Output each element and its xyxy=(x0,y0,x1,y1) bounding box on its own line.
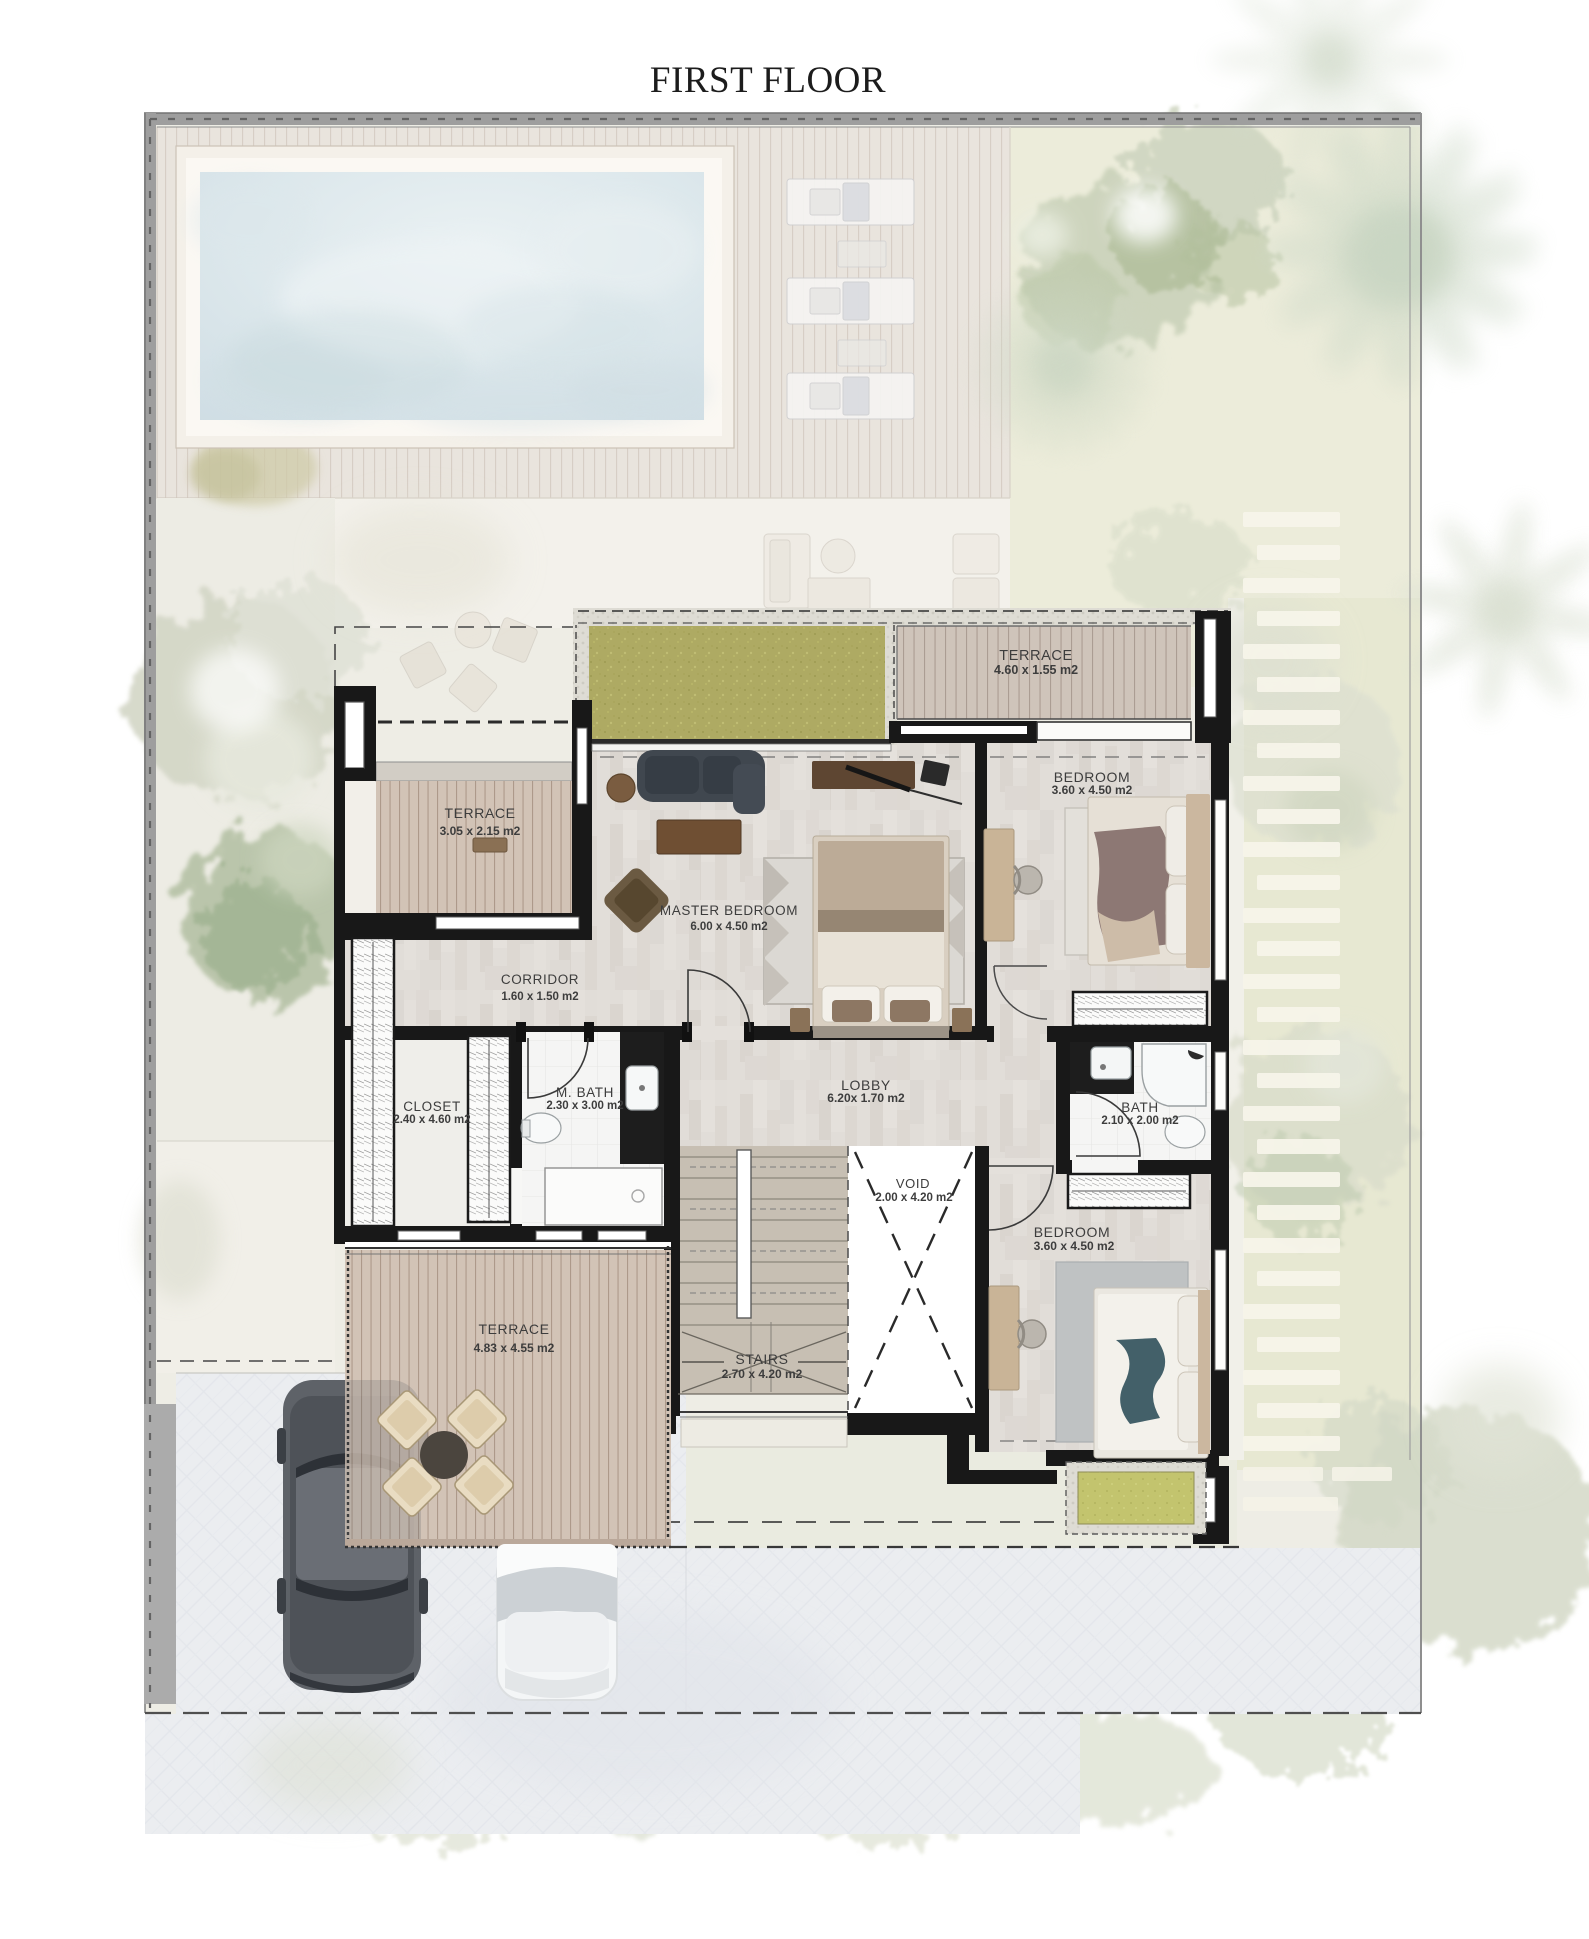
svg-text:2.30 x 3.00 m2: 2.30 x 3.00 m2 xyxy=(546,1100,623,1112)
svg-text:TERRACE: TERRACE xyxy=(444,805,515,821)
svg-text:BEDROOM: BEDROOM xyxy=(1034,1224,1111,1240)
svg-text:4.83 x 4.55 m2: 4.83 x 4.55 m2 xyxy=(474,1341,555,1355)
svg-text:STAIRS: STAIRS xyxy=(735,1351,788,1367)
svg-text:MASTER BEDROOM: MASTER BEDROOM xyxy=(660,903,798,918)
svg-text:3.05 x 2.15 m2: 3.05 x 2.15 m2 xyxy=(440,824,521,838)
svg-text:CORRIDOR: CORRIDOR xyxy=(501,972,579,987)
svg-text:CLOSET: CLOSET xyxy=(403,1099,461,1114)
svg-text:BATH: BATH xyxy=(1121,1100,1158,1115)
svg-text:3.60 x 4.50 m2: 3.60 x 4.50 m2 xyxy=(1034,1239,1115,1253)
svg-text:2.40 x 4.60 m2: 2.40 x 4.60 m2 xyxy=(393,1114,470,1126)
svg-text:4.60 x 1.55 m2: 4.60 x 1.55 m2 xyxy=(994,663,1078,677)
svg-text:6.20x 1.70 m2: 6.20x 1.70 m2 xyxy=(827,1091,905,1105)
svg-text:VOID: VOID xyxy=(896,1176,930,1191)
svg-text:2.70 x 4.20 m2: 2.70 x 4.20 m2 xyxy=(722,1367,803,1381)
svg-text:6.00 x 4.50 m2: 6.00 x 4.50 m2 xyxy=(690,921,767,933)
svg-text:M. BATH: M. BATH xyxy=(556,1085,614,1100)
svg-text:TERRACE: TERRACE xyxy=(999,648,1073,664)
svg-text:TERRACE: TERRACE xyxy=(478,1321,549,1337)
svg-text:FIRST FLOOR: FIRST FLOOR xyxy=(650,60,886,101)
svg-text:3.60 x 4.50 m2: 3.60 x 4.50 m2 xyxy=(1052,783,1133,797)
svg-text:1.60 x 1.50 m2: 1.60 x 1.50 m2 xyxy=(501,991,578,1003)
svg-text:2.10 x 2.00 m2: 2.10 x 2.00 m2 xyxy=(1101,1115,1178,1127)
svg-text:2.00 x 4.20 m2: 2.00 x 4.20 m2 xyxy=(875,1192,952,1204)
